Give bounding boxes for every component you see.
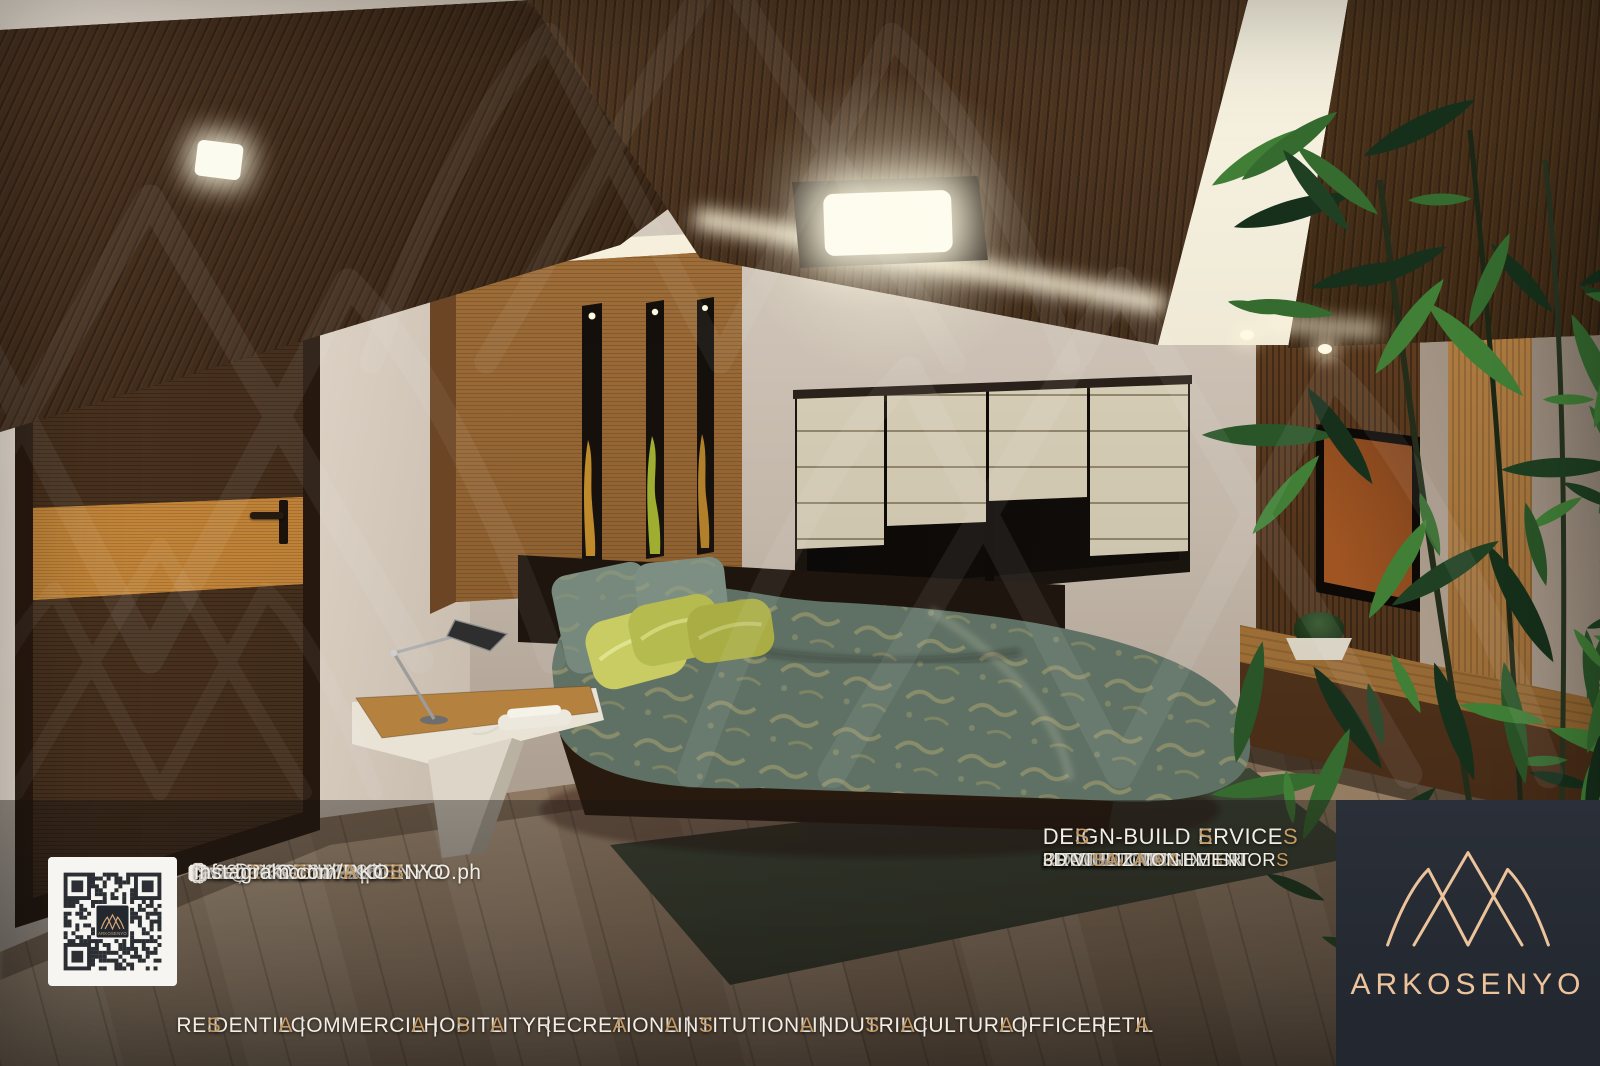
separator: | xyxy=(423,1014,447,1038)
service-item: 3D VISUALIZATION xyxy=(1043,850,1180,870)
qr-code: ARKOSENYO xyxy=(48,857,177,986)
brand-panel: ARKOSENYO xyxy=(1336,800,1600,1066)
separator: | xyxy=(677,1014,701,1038)
separator: | xyxy=(913,1014,937,1038)
flyer: ARKOSENYO ARKOSENYO (+63) 908-8648888 xyxy=(0,0,1600,1066)
services-block: DESIGN-BUILD SERVICES ARCHITECTURAL DESI… xyxy=(1043,824,1283,850)
separator: | xyxy=(1012,1014,1036,1038)
separator: | xyxy=(1092,1014,1116,1038)
sector-strip: RESIDENTIAL|COMMERCIAL|HOSPITALITY|RECRE… xyxy=(0,1014,1330,1038)
separator: | xyxy=(537,1014,561,1038)
svg-text:ARKOSENYO: ARKOSENYO xyxy=(98,931,127,936)
separator: | xyxy=(291,1014,315,1038)
instagram-url[interactable]: instagram.com/ARKOSENYO.ph xyxy=(194,861,481,885)
arkosenyo-logo-icon xyxy=(1378,838,1558,956)
separator: | xyxy=(812,1014,836,1038)
brand-wordmark: ARKOSENYO xyxy=(1336,968,1600,1002)
services-header: DESIGN-BUILD SERVICES xyxy=(1043,824,1283,850)
